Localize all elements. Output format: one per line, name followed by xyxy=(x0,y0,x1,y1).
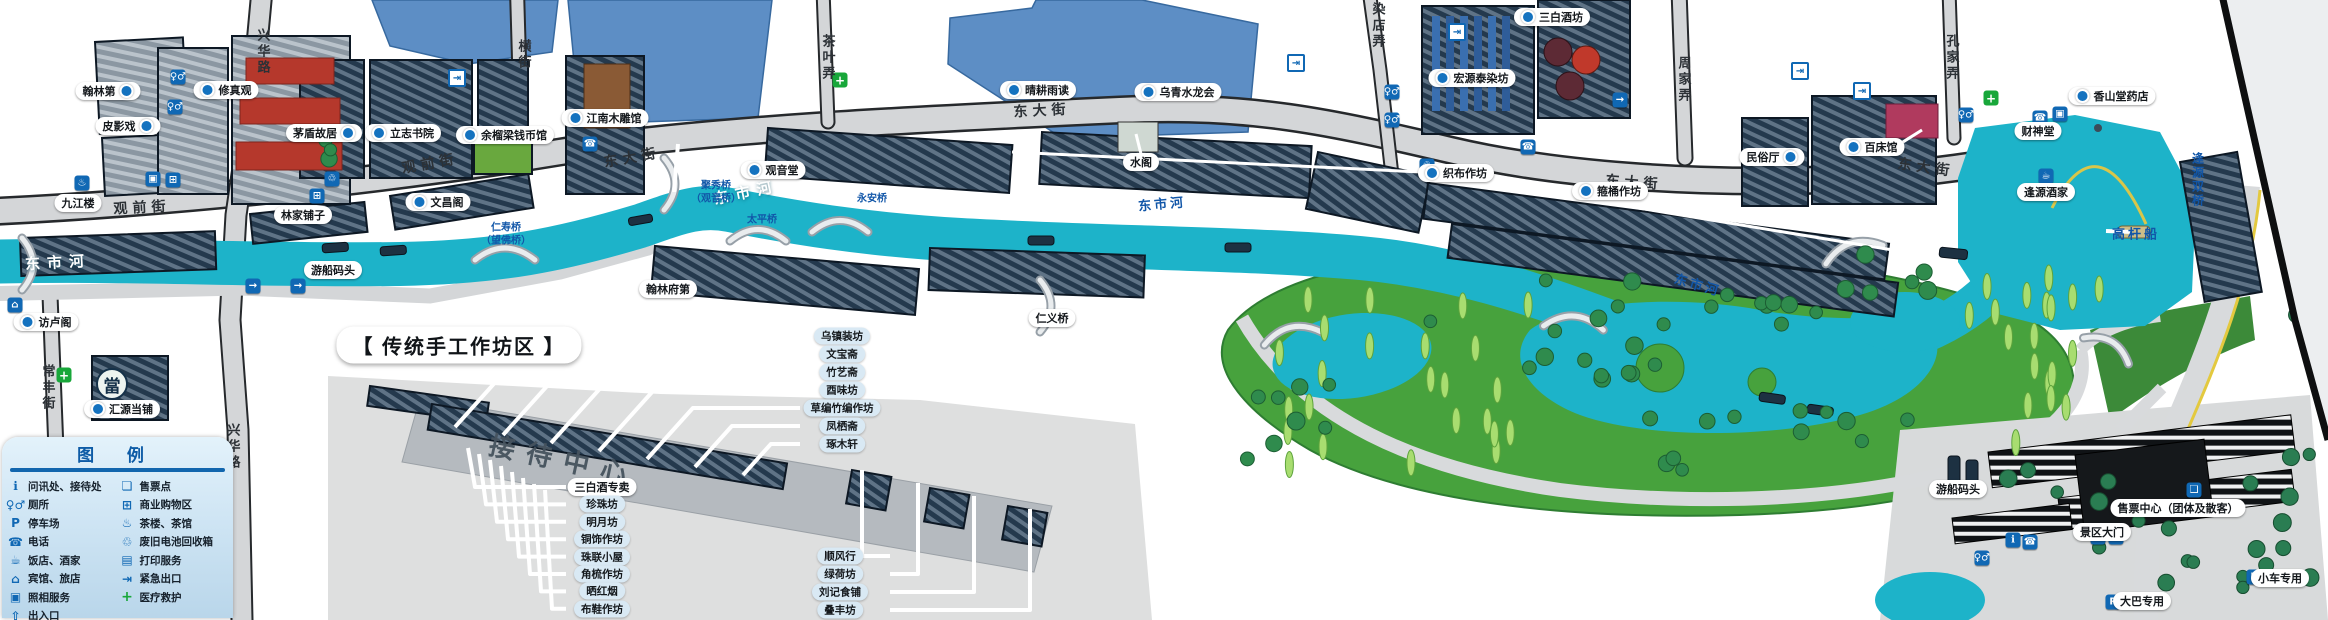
tree-icon xyxy=(2158,574,2175,591)
hotel-icon: ⌂ xyxy=(8,298,23,313)
tree-icon xyxy=(1611,300,1624,313)
label-text: 太平桥 xyxy=(747,211,777,226)
label-text: 竹艺斋 xyxy=(826,365,858,380)
tree-icon xyxy=(2282,448,2299,465)
tree-icon xyxy=(2024,392,2032,418)
medical-icon: + xyxy=(120,590,135,604)
legend-item-label: 饭店、酒家 xyxy=(28,553,81,568)
tree-icon xyxy=(1321,315,1329,341)
tree-icon xyxy=(1323,378,1336,391)
tree-icon xyxy=(1366,333,1374,359)
legend-item: ⇥紧急出口 xyxy=(120,570,228,589)
poi-label: 翰林府第 xyxy=(639,280,697,298)
tree-icon xyxy=(2095,276,2103,302)
entrance-icon: ⇧ xyxy=(8,609,23,620)
label-text: 孔家弄 xyxy=(1943,34,1962,82)
poi-dot-icon xyxy=(1521,10,1535,24)
tree-icon xyxy=(1705,300,1718,313)
poi-label: 皮影戏 xyxy=(96,117,161,135)
legend: 图 例 ℹ问讯处、接待处♀♂厕所P停车场☎电话☕饭店、酒家⌂宾馆、旅店▣照相服务… xyxy=(2,437,233,618)
bed-museum-bed xyxy=(1886,104,1938,138)
poi-label: 游船码头 xyxy=(304,261,362,279)
label-text: 百床馆 xyxy=(1865,139,1898,155)
poi-label: 小车专用 xyxy=(2251,569,2309,587)
tree-icon xyxy=(1285,452,1293,478)
tree-icon xyxy=(1251,390,1265,404)
label-text: 珠联小屋 xyxy=(581,549,623,564)
label-text: 铜饰作坊 xyxy=(581,532,623,547)
label-text: 东市河 xyxy=(24,250,91,274)
poi-dot-icon xyxy=(1784,150,1798,164)
poi-label: 修真观 xyxy=(194,81,259,99)
poi-label: 财神堂 xyxy=(2015,122,2062,140)
river-label: 东市河 xyxy=(24,250,91,274)
battery-icon: ♲ xyxy=(325,172,340,187)
workshop-label: 草编竹编作坊 xyxy=(804,400,881,417)
legend-item-label: 停车场 xyxy=(28,516,60,531)
legend-item: ▤打印服务 xyxy=(120,551,228,570)
poi-label: 文昌阁 xyxy=(406,193,471,211)
tree-icon xyxy=(1421,333,1429,359)
poi-dot-icon xyxy=(1847,140,1861,154)
label-text: 刘记食铺 xyxy=(819,585,861,600)
label-text: 小车专用 xyxy=(2258,570,2302,586)
teahouse-icon: ♨ xyxy=(75,176,90,191)
workshop-label: 叠丰坊 xyxy=(817,602,863,619)
label-text: 常丰街 xyxy=(39,364,58,412)
workshop-label: 珍珠坊 xyxy=(579,496,625,513)
tree-icon xyxy=(2023,282,2031,308)
poi-dot-icon xyxy=(21,315,35,329)
workshop-label: 乌镇装坊 xyxy=(814,328,870,345)
teahouse-icon: ♨ xyxy=(120,516,135,530)
poi-label: 织布作坊 xyxy=(1418,164,1494,182)
workshop-label: 珠联小屋 xyxy=(574,548,630,565)
tree-icon xyxy=(1548,324,1562,338)
workshop-label: 顺风行 xyxy=(817,548,863,565)
legend-item: ❏售票点 xyxy=(120,477,228,496)
photo-icon: ▣ xyxy=(2053,107,2068,122)
tree-icon xyxy=(2161,521,2176,536)
photo-icon: ▣ xyxy=(146,172,161,187)
poi-dot-icon xyxy=(1142,85,1156,99)
legend-item-label: 茶楼、茶馆 xyxy=(140,516,193,531)
tree-icon xyxy=(1999,470,2017,488)
poi-label: 宏源泰染坊 xyxy=(1429,69,1516,87)
tree-icon xyxy=(1271,391,1285,405)
legend-item-label: 售票点 xyxy=(140,479,172,494)
label-text: 售票中心（团体及散客） xyxy=(2118,500,2239,516)
street-label: 孔家弄 xyxy=(1943,34,1962,82)
legend-item-label: 出入口 xyxy=(28,608,60,620)
tree-icon xyxy=(1424,315,1437,328)
tree-icon xyxy=(2276,541,2291,556)
label-text: 织布作坊 xyxy=(1443,165,1487,181)
poi-label: 立志书院 xyxy=(365,124,441,142)
tree-icon xyxy=(1292,379,1308,395)
workshop-label: 绿荷坊 xyxy=(817,566,863,583)
tree-icon xyxy=(2248,541,2265,558)
tree-icon xyxy=(1793,424,1809,440)
label-text: 晴耕雨读 xyxy=(1025,82,1069,98)
info-icon: ℹ xyxy=(2006,533,2021,548)
label-text: 布鞋作坊 xyxy=(581,601,623,616)
poi-label: 民俗厅 xyxy=(1740,148,1805,166)
label-text: 绿荷坊 xyxy=(824,567,856,582)
tree-icon xyxy=(2051,486,2064,499)
poi-label: 观音堂 xyxy=(741,161,806,179)
toilet-icon: ♀♂ xyxy=(1959,108,1974,123)
label-text: 观前街 xyxy=(113,196,171,219)
tree-icon xyxy=(1459,293,1467,319)
label-text: 水阁 xyxy=(1130,154,1152,170)
tree-icon xyxy=(1699,413,1715,429)
label-text: 乌镇装坊 xyxy=(821,329,863,344)
toilet-icon: ♀♂ xyxy=(168,100,183,115)
hotel-icon: ⌂ xyxy=(8,572,23,586)
tree-icon xyxy=(2281,488,2298,505)
tree-icon xyxy=(1266,435,1283,452)
legend-item: ☎电话 xyxy=(8,533,116,552)
label-text: 大巴专用 xyxy=(2120,593,2164,609)
poi-dot-icon xyxy=(463,128,477,142)
workshop-label: 明月坊 xyxy=(579,513,625,530)
label-text: 逢源双桥 xyxy=(2190,152,2207,208)
label-text: 东大街 xyxy=(1013,99,1071,122)
tree-icon xyxy=(2303,448,2315,460)
street-label: 观前街 xyxy=(113,196,171,219)
poi-label: 江南木雕馆 xyxy=(562,109,649,127)
label-text: 皮影戏 xyxy=(103,118,136,134)
tree-icon xyxy=(1857,246,1874,263)
tree-icon xyxy=(2273,514,2291,532)
poi-dot-icon xyxy=(91,402,105,416)
tree-icon xyxy=(1452,408,1460,434)
legend-right-column: ❏售票点⊞商业购物区♨茶楼、茶馆♲废旧电池回收箱▤打印服务⇥紧急出口+医疗救护 xyxy=(120,477,228,620)
tree-icon xyxy=(1493,377,1501,403)
tree-icon xyxy=(1983,273,1991,299)
tree-icon xyxy=(2100,474,2115,489)
tree-icon xyxy=(1578,353,1592,367)
tree-icon xyxy=(2069,284,2077,310)
label-text: 凤栖斋 xyxy=(826,419,858,434)
poi-dot-icon xyxy=(341,126,355,140)
legend-left-column: ℹ问讯处、接待处♀♂厕所P停车场☎电话☕饭店、酒家⌂宾馆、旅店▣照相服务⇧出入口 xyxy=(8,477,116,620)
street-label: 茶叶弄 xyxy=(819,34,838,82)
legend-item-label: 打印服务 xyxy=(140,553,182,568)
workshop-label: 酉味坊 xyxy=(819,382,865,399)
tree-icon xyxy=(1523,361,1537,375)
label-text: 茶叶弄 xyxy=(819,34,838,82)
printing-icon: ▤ xyxy=(120,553,135,567)
tree-icon xyxy=(1594,368,1608,382)
poi-label: 仁义桥 xyxy=(1029,309,1076,327)
label-text: 财神堂 xyxy=(2022,123,2055,139)
poi-label: 茅盾故居 xyxy=(286,124,362,142)
tree-icon xyxy=(2048,361,2056,387)
tree-icon xyxy=(1524,292,1532,318)
poi-label: 箍桶作坊 xyxy=(1572,182,1648,200)
emergency-icon: ⇥ xyxy=(448,69,466,87)
workshop-label: 布鞋作坊 xyxy=(574,600,630,617)
workshop-area-title: 【 传统手工作坊区 】 xyxy=(336,327,581,364)
tree-icon xyxy=(1901,413,1915,427)
toilet-icon: ♀♂ xyxy=(1385,85,1400,100)
tree-icon xyxy=(1765,295,1781,311)
tree-icon xyxy=(1916,264,1932,280)
tree-icon xyxy=(2030,323,2038,349)
label-text: 香山堂药店 xyxy=(2094,88,2149,104)
workshop-label: 凤栖斋 xyxy=(819,418,865,435)
tree-icon xyxy=(1624,273,1641,290)
legend-item-label: 医疗救护 xyxy=(140,590,182,605)
label-text: 箍桶作坊 xyxy=(1597,183,1641,199)
legend-item-label: 商业购物区 xyxy=(140,497,193,512)
street-label: 横街 xyxy=(515,39,534,71)
label-text: 草编竹编作坊 xyxy=(811,401,874,416)
label-text: 余榴梁钱币馆 xyxy=(481,127,547,143)
workshop-label: 刘记食铺 xyxy=(812,584,868,601)
shopping-icon: ⊞ xyxy=(310,189,325,204)
legend-item-label: 废旧电池回收箱 xyxy=(140,534,214,549)
poi-label: 翰林第 xyxy=(76,82,141,100)
tree-icon xyxy=(1855,435,1868,448)
tree-icon xyxy=(1319,421,1332,434)
poi-label: 余榴梁钱币馆 xyxy=(456,126,554,144)
tree-icon xyxy=(1275,340,1283,366)
label-text: （望佛桥） xyxy=(481,232,531,247)
label-text: 立志书院 xyxy=(390,125,434,141)
tree-icon xyxy=(1240,452,1254,466)
ticket-icon: ❏ xyxy=(2187,483,2202,498)
emergency-icon: ⇥ xyxy=(1287,54,1305,72)
poi-label: 水阁 xyxy=(1123,153,1159,171)
label-text: 晒红烟 xyxy=(586,584,618,599)
street-label: 周家弄 xyxy=(1675,56,1694,104)
label-text: 永安桥 xyxy=(857,190,887,205)
tree-icon xyxy=(2047,295,2055,321)
tree-icon xyxy=(1539,274,1552,287)
tree-icon xyxy=(2243,476,2258,491)
street-label: 东大街 xyxy=(1013,99,1071,122)
poi-label: 乌青水龙会 xyxy=(1135,83,1222,101)
wuzhen-tourist-map: 常丰街观前街观前街兴华路兴华路横街茶叶弄染店弄周家弄孔家弄东大街东大街东大街东大… xyxy=(0,0,2328,620)
tree-icon xyxy=(1407,450,1415,476)
tree-icon xyxy=(1919,282,1937,300)
tree-icon xyxy=(2045,265,2053,291)
bridge-label: 永安桥 xyxy=(857,190,887,205)
poi-dot-icon xyxy=(569,111,583,125)
tree-icon xyxy=(1862,285,1877,300)
tree-icon xyxy=(1319,434,1327,460)
legend-item: ♨茶楼、茶馆 xyxy=(120,514,228,533)
poi-label: 景区大门 xyxy=(2073,523,2131,541)
tree-icon xyxy=(1483,408,1491,434)
legend-divider xyxy=(10,468,225,472)
tree-icon xyxy=(1781,296,1798,313)
poi-label: 售票中心（团体及散客） xyxy=(2111,499,2246,517)
label-text: 角梳作坊 xyxy=(581,567,623,582)
emergency-icon: ⇥ xyxy=(1791,62,1809,80)
poi-dot-icon xyxy=(748,163,762,177)
label-text: 逢源酒家 xyxy=(2024,184,2068,200)
tree-icon xyxy=(2020,463,2035,478)
label-text: 酉味坊 xyxy=(826,383,858,398)
label-text: 琢木轩 xyxy=(826,437,858,452)
tree-icon xyxy=(1657,318,1670,331)
legend-item: ♀♂厕所 xyxy=(8,496,116,515)
info-icon: ℹ xyxy=(8,479,23,493)
exit_arrow-icon: → xyxy=(1613,93,1628,108)
tree-icon xyxy=(1648,358,1661,371)
poi-label: 晴耕雨读 xyxy=(1000,81,1076,99)
tree-icon xyxy=(2187,556,2200,569)
label-text: 翰林第 xyxy=(83,83,116,99)
label-text: 景区大门 xyxy=(2080,524,2124,540)
tree-icon xyxy=(2069,340,2077,366)
tree-icon xyxy=(1506,420,1514,446)
legend-item: ♲废旧电池回收箱 xyxy=(120,533,228,552)
label-text: 民俗厅 xyxy=(1747,149,1780,165)
tree-icon xyxy=(1720,288,1733,301)
phone-icon: ☎ xyxy=(2023,535,2038,550)
tree-icon xyxy=(1820,406,1832,418)
street-label: 常丰街 xyxy=(39,364,58,412)
label-text: 叠丰坊 xyxy=(824,603,856,618)
phone-icon: ☎ xyxy=(1521,140,1536,155)
label-text: 江南木雕馆 xyxy=(587,110,642,126)
label-text: 修真观 xyxy=(219,82,252,98)
emergency-icon: ⇥ xyxy=(1448,23,1466,41)
restaurant-icon: ☕ xyxy=(2039,169,2054,184)
label-text: 珍珠坊 xyxy=(586,497,618,512)
label-text: 高杆船 xyxy=(2112,224,2160,243)
tree-icon xyxy=(1366,287,1374,313)
legend-item: ⇧出入口 xyxy=(8,607,116,620)
phone-icon: ☎ xyxy=(583,137,598,152)
tree-icon xyxy=(1471,335,1479,361)
medical-icon: + xyxy=(1984,91,1999,106)
poi-label: 逢源酒家 xyxy=(2017,183,2075,201)
label-text: 翰林府第 xyxy=(646,281,690,297)
label-text: 三白酒坊 xyxy=(1539,9,1583,25)
label-text: 明月坊 xyxy=(586,514,618,529)
tree-icon xyxy=(1728,410,1741,423)
bridge-label: 太平桥 xyxy=(747,211,777,226)
tree-icon xyxy=(1441,372,1449,398)
tree-icon xyxy=(1991,299,1999,325)
pawnshop-icon: 當 xyxy=(96,368,128,400)
tree-icon xyxy=(1905,275,1919,289)
label-text: 文宝斋 xyxy=(826,347,858,362)
medical-icon: + xyxy=(57,368,72,383)
tree-icon xyxy=(1793,404,1807,418)
street-label: 兴华路 xyxy=(254,28,273,76)
poi-dot-icon xyxy=(140,119,154,133)
poi-dot-icon xyxy=(1007,83,1021,97)
label-text: 访卢阁 xyxy=(39,314,72,330)
tree-icon xyxy=(1427,366,1435,392)
poi-label: 三白酒坊 xyxy=(1514,8,1590,26)
label-text: 乌青水龙会 xyxy=(1160,84,1215,100)
phone-icon: ☎ xyxy=(8,535,23,549)
workshop-label: 铜饰作坊 xyxy=(574,531,630,548)
label-text: 【 传统手工作坊区 】 xyxy=(352,331,565,360)
tree-icon xyxy=(2047,386,2055,412)
label-text: 兴华路 xyxy=(254,28,273,76)
tree-icon xyxy=(2031,353,2039,379)
poi-dot-icon xyxy=(120,84,134,98)
label-text: （观音桥） xyxy=(691,190,741,205)
legend-item-label: 紧急出口 xyxy=(140,571,182,586)
label-text: 林家铺子 xyxy=(281,207,325,223)
poi-dot-icon xyxy=(201,83,215,97)
label-text: 周家弄 xyxy=(1675,56,1694,104)
toilet-icon: ♀♂ xyxy=(1385,113,1400,128)
emergency-icon: ⇥ xyxy=(1853,82,1871,100)
bridge-label: 逢源双桥 xyxy=(2190,152,2207,208)
legend-item-label: 宾馆、旅店 xyxy=(28,571,81,586)
label-text: 仁义桥 xyxy=(1036,310,1069,326)
label-text: 游船码头 xyxy=(311,262,355,278)
workshop-label: 晒红烟 xyxy=(579,583,625,600)
toilet-icon: ♀♂ xyxy=(8,498,23,512)
legend-item-label: 照相服务 xyxy=(28,590,70,605)
poi-dot-icon xyxy=(372,126,386,140)
legend-item: ℹ问讯处、接待处 xyxy=(8,477,116,496)
legend-item: ⊞商业购物区 xyxy=(120,496,228,515)
bridge-label: （观音桥） xyxy=(691,190,741,205)
tree-icon xyxy=(1304,287,1312,313)
poi-label: 林家铺子 xyxy=(274,206,332,224)
legend-item-label: 电话 xyxy=(28,534,49,549)
label-text: 横街 xyxy=(515,39,534,71)
tree-icon xyxy=(1774,317,1788,331)
legend-item: ▣照相服务 xyxy=(8,588,116,607)
tree-icon xyxy=(1666,451,1681,466)
toilet-icon: ♀♂ xyxy=(1975,551,1990,566)
poi-label: 大巴专用 xyxy=(2113,592,2171,610)
tree-icon xyxy=(324,144,336,156)
tree-icon xyxy=(1305,394,1313,420)
map-blue-label: 高杆船 xyxy=(2112,224,2160,243)
tree-icon xyxy=(1643,411,1658,426)
legend-item-label: 厕所 xyxy=(28,497,49,512)
tree-icon xyxy=(1287,412,1305,430)
tree-icon xyxy=(1621,365,1636,380)
legend-item: +医疗救护 xyxy=(120,588,228,607)
exit_arrow-icon: → xyxy=(291,279,306,294)
ticket-icon: ❏ xyxy=(120,479,135,493)
legend-item: ⌂宾馆、旅店 xyxy=(8,570,116,589)
tree-icon xyxy=(1676,463,1689,476)
label-text: 文昌阁 xyxy=(431,194,464,210)
poi-dot-icon xyxy=(413,195,427,209)
tree-icon xyxy=(1590,310,1607,327)
poi-label: 香山堂药店 xyxy=(2069,87,2156,105)
shopping-icon: ⊞ xyxy=(166,173,181,188)
label-text: 九江楼 xyxy=(62,195,95,211)
tree-icon xyxy=(1838,412,1855,429)
workshop-label: 文宝斋 xyxy=(819,346,865,363)
workshop-label: 角梳作坊 xyxy=(574,566,630,583)
photo-icon: ▣ xyxy=(8,590,23,604)
tree-icon xyxy=(2062,394,2070,420)
label-text: 茅盾故居 xyxy=(293,125,337,141)
emergency-icon: ⇥ xyxy=(120,572,135,586)
legend-item: P停车场 xyxy=(8,514,116,533)
label-text: 染店弄 xyxy=(1369,2,1388,50)
